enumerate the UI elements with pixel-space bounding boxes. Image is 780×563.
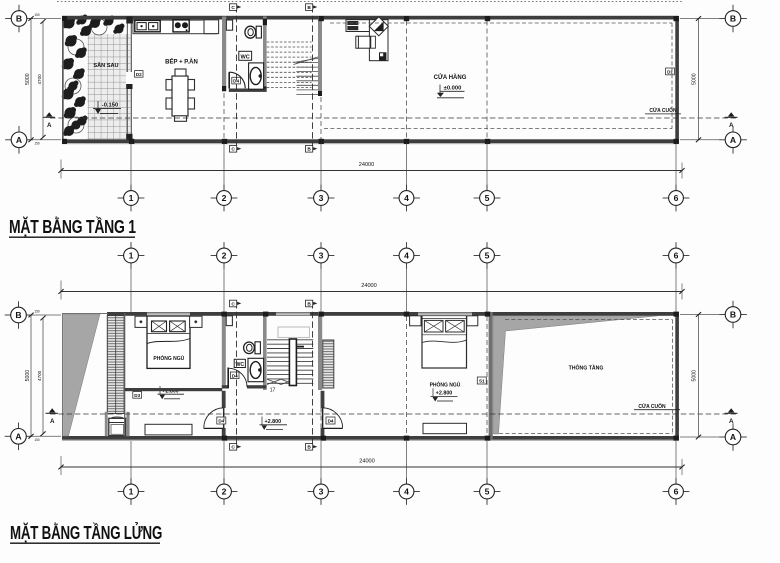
svg-text:C: C	[231, 445, 235, 451]
svg-text:SÂN SAU: SÂN SAU	[93, 62, 118, 69]
svg-text:1: 1	[129, 193, 134, 203]
svg-text:CỬA HÀNG: CỬA HÀNG	[434, 74, 467, 81]
svg-text:6: 6	[674, 251, 679, 261]
svg-text:4: 4	[404, 487, 409, 497]
svg-text:150: 150	[34, 438, 40, 442]
svg-text:5000: 5000	[691, 73, 697, 85]
svg-text:A: A	[730, 432, 736, 442]
svg-text:A: A	[15, 431, 21, 441]
svg-text:+2.800: +2.800	[436, 391, 453, 397]
svg-text:3: 3	[319, 487, 324, 497]
svg-text:C: C	[231, 5, 235, 11]
svg-text:150: 150	[34, 310, 40, 314]
svg-text:150: 150	[34, 142, 40, 146]
svg-text:2: 2	[222, 193, 227, 203]
svg-text:A: A	[730, 135, 736, 145]
svg-text:MẶT BẰNG TẦNG 1: MẶT BẰNG TẦNG 1	[9, 216, 136, 237]
svg-text:3: 3	[319, 193, 324, 203]
svg-text:5: 5	[485, 193, 490, 203]
svg-text:A: A	[50, 418, 55, 425]
svg-text:THÔNG TẦNG: THÔNG TẦNG	[569, 364, 604, 372]
svg-text:A: A	[47, 122, 52, 129]
svg-text:B: B	[307, 147, 311, 153]
svg-text:B: B	[307, 301, 311, 307]
svg-text:CỬA CUỐN: CỬA CUỐN	[638, 403, 666, 410]
svg-text:2: 2	[222, 251, 227, 261]
svg-text:17: 17	[270, 388, 276, 394]
svg-text:24000: 24000	[359, 162, 375, 168]
svg-text:+2.800: +2.800	[264, 419, 281, 425]
svg-text:4700: 4700	[37, 74, 42, 85]
svg-text:5000: 5000	[691, 370, 697, 382]
svg-text:D4: D4	[232, 373, 238, 378]
svg-text:B: B	[307, 5, 311, 11]
svg-text:WC: WC	[241, 54, 250, 60]
svg-text:D3: D3	[134, 393, 140, 398]
svg-text:D4: D4	[328, 419, 334, 424]
svg-text:2: 2	[222, 487, 227, 497]
svg-text:1: 1	[129, 487, 134, 497]
svg-text:PHÒNG NGỦ: PHÒNG NGỦ	[153, 354, 184, 362]
svg-text:D1: D1	[667, 69, 673, 74]
svg-text:5: 5	[485, 251, 490, 261]
svg-text:4700: 4700	[37, 370, 42, 381]
svg-text:3: 3	[319, 251, 324, 261]
svg-text:C: C	[231, 301, 235, 307]
svg-text:150: 150	[34, 13, 40, 17]
svg-text:1: 1	[129, 251, 134, 261]
svg-text:6: 6	[674, 487, 679, 497]
svg-text:24000: 24000	[361, 283, 377, 289]
svg-text:A: A	[16, 135, 22, 145]
svg-text:5000: 5000	[25, 73, 31, 85]
svg-text:4: 4	[404, 193, 409, 203]
svg-text:B: B	[15, 310, 21, 320]
svg-text:±0.000: ±0.000	[444, 86, 462, 92]
svg-text:MẶT BẰNG TẦNG LỬNG: MẶT BẰNG TẦNG LỬNG	[10, 522, 162, 544]
svg-text:6: 6	[674, 193, 679, 203]
svg-text:4: 4	[404, 251, 409, 261]
svg-text:S1: S1	[479, 379, 485, 384]
svg-text:C: C	[231, 147, 235, 153]
svg-text:B: B	[730, 14, 736, 24]
svg-text:D2: D2	[136, 72, 142, 77]
svg-text:5: 5	[485, 487, 490, 497]
svg-text:-0.150: -0.150	[102, 103, 118, 109]
svg-text:24000: 24000	[359, 459, 375, 465]
svg-text:PHÒNG NGỦ: PHÒNG NGỦ	[430, 381, 461, 389]
svg-text:B: B	[730, 310, 736, 320]
svg-text:B: B	[307, 445, 311, 451]
svg-text:CỬA CUỐN: CỬA CUỐN	[649, 107, 677, 114]
svg-text:B: B	[16, 14, 22, 24]
svg-text:5000: 5000	[25, 370, 31, 382]
svg-text:BẾP + P.ĂN: BẾP + P.ĂN	[165, 59, 198, 66]
